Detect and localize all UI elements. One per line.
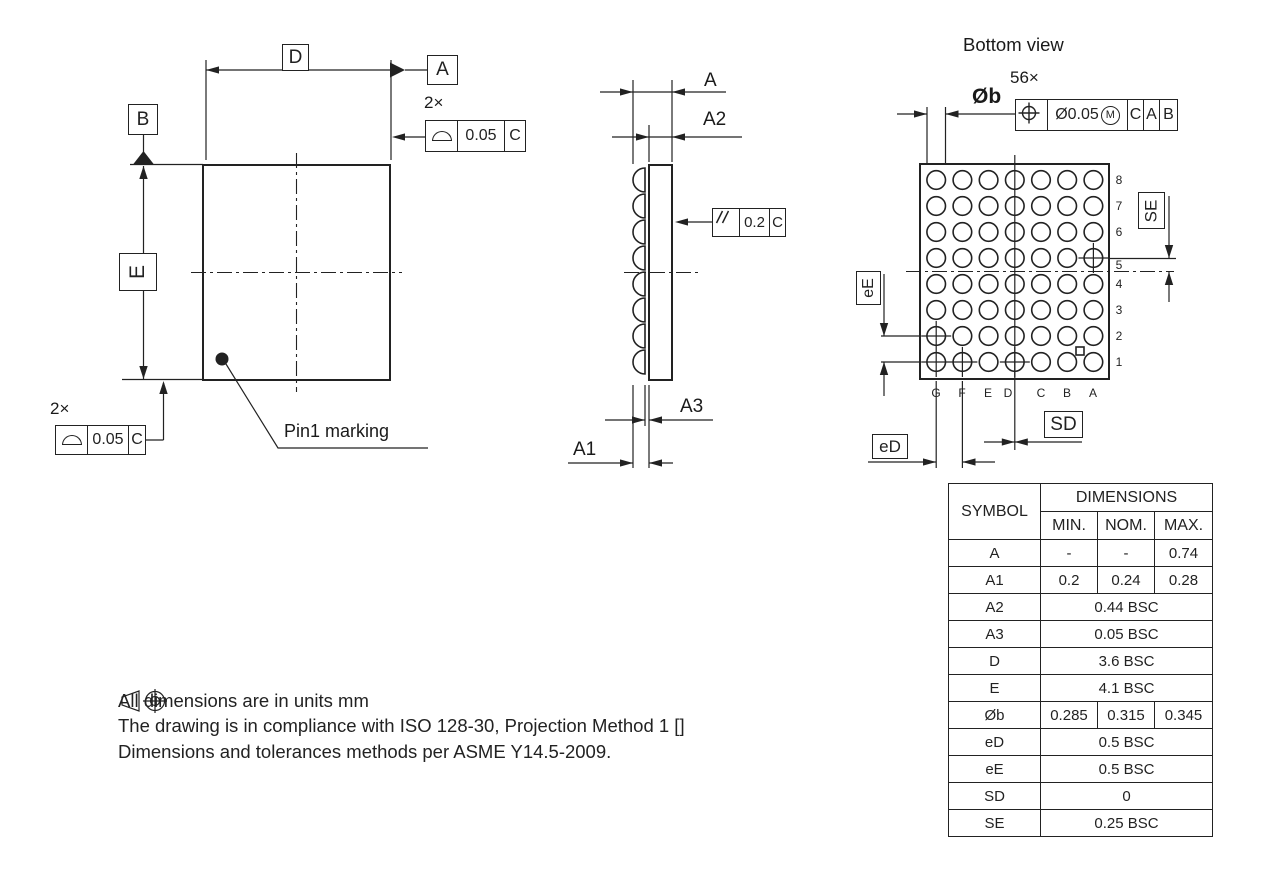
table-cell-merged: 4.1 BSC — [1041, 675, 1213, 702]
table-header-max: MAX. — [1155, 512, 1213, 540]
solder-ball — [927, 171, 946, 190]
datum-label-b: B — [128, 104, 158, 135]
table-row: A3 0.05 BSC — [949, 621, 1213, 648]
table-cell-symbol: SE — [949, 810, 1041, 837]
solder-ball — [979, 327, 998, 346]
table-cell-merged: 0.05 BSC — [1041, 621, 1213, 648]
solder-ball — [1058, 249, 1077, 268]
solder-ball — [1058, 223, 1077, 242]
table-cell-max: 0.74 — [1155, 540, 1213, 567]
table-row: E 4.1 BSC — [949, 675, 1213, 702]
table-cell-merged: 3.6 BSC — [1041, 648, 1213, 675]
profile-of-surface-icon — [56, 426, 87, 454]
table-row: D 3.6 BSC — [949, 648, 1213, 675]
table-cell-merged: 0.44 BSC — [1041, 594, 1213, 621]
top-view-linework — [122, 60, 428, 448]
table-row: Øb 0.285 0.315 0.345 — [949, 702, 1213, 729]
ball-row-label: 3 — [1112, 303, 1126, 317]
solder-ball — [979, 223, 998, 242]
note-line-1: All dimensions are in units mm — [118, 688, 685, 713]
table-cell-merged: 0.25 BSC — [1041, 810, 1213, 837]
dim-label-a1: A1 — [573, 439, 596, 461]
bottom-view-linework — [868, 107, 1176, 468]
table-cell-merged: 0.5 BSC — [1041, 756, 1213, 783]
ball-row-label: 1 — [1112, 355, 1126, 369]
solder-ball — [1084, 353, 1103, 372]
note-line-2: The drawing is in compliance with ISO 12… — [118, 713, 685, 738]
solder-ball — [1058, 275, 1077, 294]
side-ball — [633, 298, 645, 322]
solder-ball — [1058, 301, 1077, 320]
table-cell-nom: - — [1098, 540, 1155, 567]
ball-column-label: F — [955, 386, 969, 400]
ball-column-label: E — [981, 386, 995, 400]
solder-ball — [953, 223, 972, 242]
table-cell-max: 0.28 — [1155, 567, 1213, 594]
ball-row-label: 4 — [1112, 277, 1126, 291]
fcf-datum: C — [128, 426, 145, 454]
table-cell-merged: 0.5 BSC — [1041, 729, 1213, 756]
table-cell-symbol: D — [949, 648, 1041, 675]
solder-ball — [953, 249, 972, 268]
parallelism-icon — [713, 209, 739, 236]
solder-ball — [979, 249, 998, 268]
solder-ball — [979, 197, 998, 216]
side-ball — [633, 350, 645, 374]
solder-ball — [1032, 197, 1051, 216]
fcf-tolerance: 0.05 — [87, 426, 128, 454]
dim-label-ob: Øb — [972, 85, 1001, 109]
datum-a-triangle-icon — [390, 63, 405, 78]
solder-ball — [1084, 275, 1103, 294]
drawing-notes: All dimensions are in units mm The drawi… — [118, 688, 685, 764]
ball-column-label: B — [1060, 386, 1074, 400]
solder-ball — [979, 171, 998, 190]
table-cell-symbol: A — [949, 540, 1041, 567]
table-row: SE 0.25 BSC — [949, 810, 1213, 837]
fcf-datum-2: A — [1143, 100, 1159, 130]
table-row: SD 0 — [949, 783, 1213, 810]
dim-label-a: A — [704, 70, 717, 92]
table-header-nom: NOM. — [1098, 512, 1155, 540]
pin1-dot-icon — [216, 353, 229, 366]
engineering-drawing-page: D A B E 2× 0.05 C 2× 0.05 C Pin1 marking… — [0, 0, 1280, 890]
first-angle-projection-icon — [119, 688, 169, 714]
ball-column-label: C — [1034, 386, 1048, 400]
side-ball — [633, 194, 645, 218]
table-cell-symbol: A1 — [949, 567, 1041, 594]
ball-row-label: 7 — [1112, 199, 1126, 213]
ball-column-label: A — [1086, 386, 1100, 400]
side-ball — [633, 168, 645, 192]
solder-ball — [1032, 353, 1051, 372]
solder-ball — [1032, 249, 1051, 268]
table-cell-nom: 0.315 — [1098, 702, 1155, 729]
table-cell-symbol: E — [949, 675, 1041, 702]
solder-ball — [1058, 353, 1077, 372]
solder-ball — [1032, 301, 1051, 320]
qty-lower: 2× — [50, 399, 69, 419]
dim-label-se: SE — [1138, 192, 1165, 229]
solder-ball — [927, 301, 946, 320]
side-ball — [633, 272, 645, 296]
qty-upper: 2× — [424, 93, 443, 113]
bottom-view-title: Bottom view — [963, 34, 1064, 56]
dim-label-a3: A3 — [680, 396, 703, 418]
fcf-datum: C — [504, 121, 525, 151]
fcf-datum-3: B — [1159, 100, 1177, 130]
solder-ball — [953, 327, 972, 346]
ball-row-label: 2 — [1112, 329, 1126, 343]
solder-ball — [1084, 197, 1103, 216]
datum-label-a: A — [427, 55, 458, 85]
solder-ball — [979, 275, 998, 294]
solder-ball — [979, 301, 998, 320]
table-cell-symbol: A3 — [949, 621, 1041, 648]
fcf-datum: C — [769, 209, 785, 236]
ball-row-label: 6 — [1112, 225, 1126, 239]
dimensions-table: SYMBOL DIMENSIONS MIN. NOM. MAX. A - - 0… — [948, 483, 1213, 837]
solder-ball — [1084, 223, 1103, 242]
ball-row-label: 8 — [1112, 173, 1126, 187]
solder-ball — [1058, 327, 1077, 346]
table-cell-max: 0.345 — [1155, 702, 1213, 729]
table-cell-min: - — [1041, 540, 1098, 567]
table-row: A - - 0.74 — [949, 540, 1213, 567]
pin-a1-square-marker — [1076, 347, 1084, 355]
mmc-icon: M — [1101, 106, 1120, 125]
position-icon — [1016, 100, 1047, 130]
ball-row-label: 5 — [1112, 258, 1126, 272]
table-row: eD 0.5 BSC — [949, 729, 1213, 756]
solder-ball — [953, 197, 972, 216]
solder-ball — [953, 301, 972, 320]
side-view-linework — [568, 80, 742, 468]
dim-label-d: D — [282, 44, 309, 71]
table-header-min: MIN. — [1041, 512, 1098, 540]
table-cell-symbol: SD — [949, 783, 1041, 810]
table-cell-symbol: eE — [949, 756, 1041, 783]
ball-column-label: D — [1001, 386, 1015, 400]
pin1-marking-label: Pin1 marking — [284, 421, 389, 442]
solder-ball — [1058, 197, 1077, 216]
solder-ball — [1032, 171, 1051, 190]
solder-ball — [979, 353, 998, 372]
solder-ball — [927, 223, 946, 242]
fcf-profile-upper: 0.05 C — [425, 120, 526, 152]
ball-column-label: G — [929, 386, 943, 400]
table-row: A1 0.2 0.24 0.28 — [949, 567, 1213, 594]
table-cell-nom: 0.24 — [1098, 567, 1155, 594]
solder-ball — [1032, 275, 1051, 294]
fcf-tolerance: Ø0.05 M — [1047, 100, 1127, 130]
table-cell-symbol: A2 — [949, 594, 1041, 621]
side-ball — [633, 246, 645, 270]
table-header-dimensions: DIMENSIONS — [1041, 484, 1213, 512]
solder-ball — [1084, 327, 1103, 346]
solder-ball — [927, 275, 946, 294]
fcf-tolerance: 0.2 — [739, 209, 769, 236]
dim-label-ed: eD — [872, 434, 908, 459]
profile-of-surface-icon — [426, 121, 457, 151]
solder-ball — [1084, 171, 1103, 190]
solder-ball — [927, 249, 946, 268]
solder-ball — [953, 171, 972, 190]
solder-ball — [1084, 301, 1103, 320]
fcf-profile-lower: 0.05 C — [55, 425, 146, 455]
table-header-symbol: SYMBOL — [949, 484, 1041, 540]
table-row: eE 0.5 BSC — [949, 756, 1213, 783]
dim-label-e: E — [119, 253, 157, 291]
solder-ball — [1032, 223, 1051, 242]
dim-label-a2: A2 — [703, 109, 726, 131]
solder-ball — [953, 275, 972, 294]
table-cell-merged: 0 — [1041, 783, 1213, 810]
dim-label-sd: SD — [1044, 411, 1083, 438]
datum-b-triangle-icon — [133, 151, 154, 165]
solder-ball — [927, 197, 946, 216]
solder-ball — [1058, 171, 1077, 190]
fcf-tolerance: 0.05 — [457, 121, 504, 151]
table-row: A2 0.44 BSC — [949, 594, 1213, 621]
table-cell-min: 0.2 — [1041, 567, 1098, 594]
solder-ball — [1032, 327, 1051, 346]
fcf-position: Ø0.05 M C A B — [1015, 99, 1178, 131]
side-ball — [633, 324, 645, 348]
note-line-3: Dimensions and tolerances methods per AS… — [118, 739, 685, 764]
dim-label-ee: eE — [856, 271, 881, 305]
fcf-datum-1: C — [1127, 100, 1143, 130]
table-cell-min: 0.285 — [1041, 702, 1098, 729]
fcf-parallelism: 0.2 C — [712, 208, 786, 237]
table-cell-symbol: Øb — [949, 702, 1041, 729]
side-ball — [633, 220, 645, 244]
ball-count: 56× — [1010, 68, 1039, 88]
table-cell-symbol: eD — [949, 729, 1041, 756]
